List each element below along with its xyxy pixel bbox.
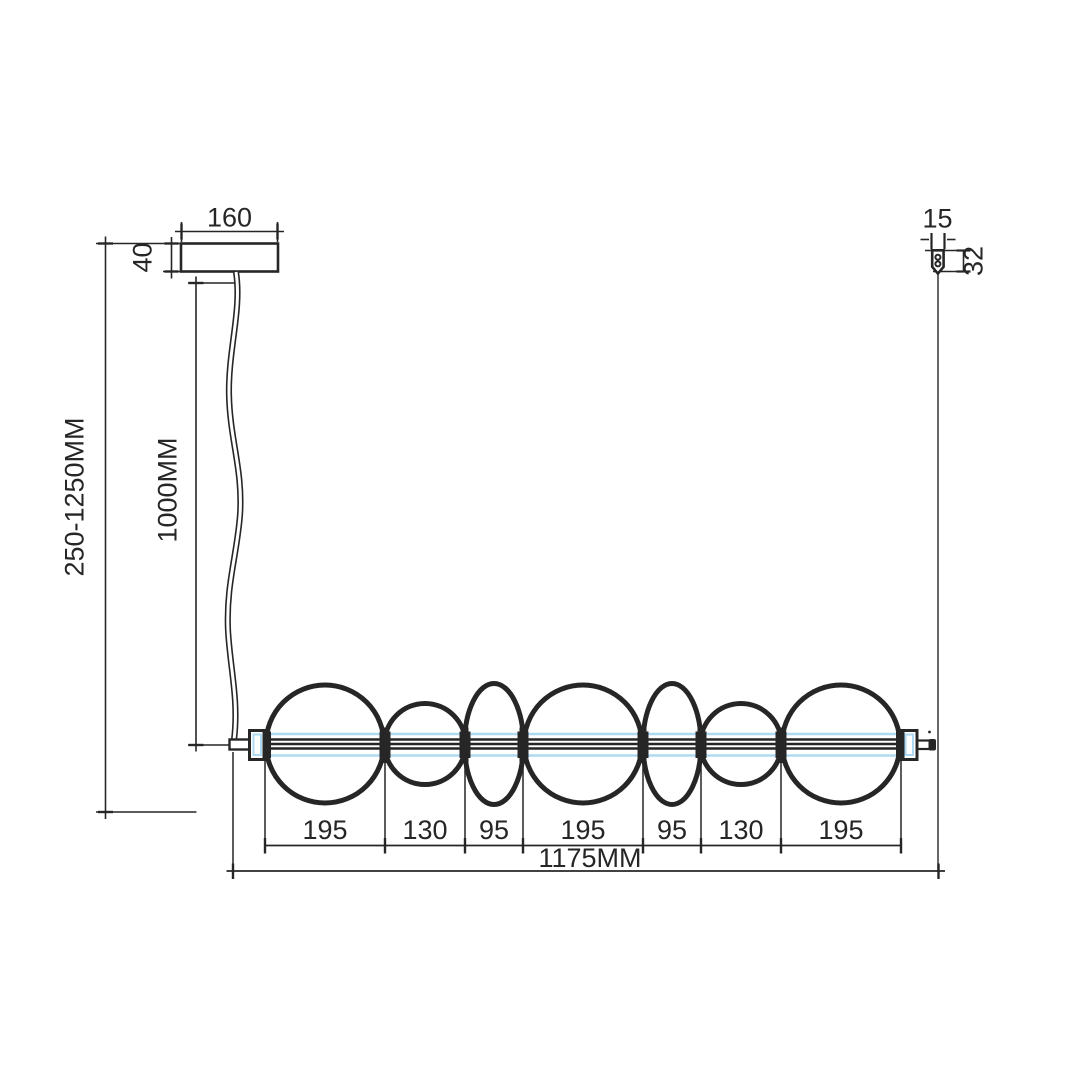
dim-label-suspension-range: 250-1250MM <box>60 417 90 576</box>
dim-label-segment-3: 95 <box>479 815 509 845</box>
end-cap-right-junction <box>896 732 905 759</box>
connector-block <box>776 728 787 764</box>
connector-body <box>380 732 391 759</box>
dim-label-segment-4: 195 <box>560 815 605 845</box>
connector-block <box>696 728 707 764</box>
fixture <box>250 684 937 805</box>
connector-body <box>518 732 529 759</box>
dim-label-cable-length: 1000MM <box>153 437 183 542</box>
suspension-cable <box>228 272 251 750</box>
connector-block <box>460 728 471 764</box>
dim-label-canopy-height: 40 <box>128 242 158 272</box>
connector-block <box>638 728 649 764</box>
connector-block <box>518 728 529 764</box>
end-pin-right <box>918 731 937 751</box>
gripper-screw <box>935 261 940 266</box>
dim-label-segment-6: 130 <box>718 815 763 845</box>
pin-mark <box>928 731 931 734</box>
connector-body <box>776 732 787 759</box>
end-cap-left-junction <box>263 732 272 759</box>
drawing-canvas: 160 40 250-1250MM 1000MM <box>0 0 1080 1080</box>
dim-label-segment-1: 195 <box>302 815 347 845</box>
dim-segments: 195 130 95 195 95 130 195 <box>265 760 901 854</box>
dim-label-canopy-width: 160 <box>207 203 252 233</box>
dim-canopy-width: 160 <box>175 203 284 243</box>
dim-label-overall-length: 1175MM <box>538 843 641 873</box>
gripper-screw <box>935 255 940 260</box>
pendant-dimension-drawing: 160 40 250-1250MM 1000MM <box>0 0 1080 1080</box>
canopy-plate <box>181 244 278 272</box>
dim-label-gripper-height: 32 <box>959 246 989 276</box>
connector-body <box>638 732 649 759</box>
dim-label-segment-5: 95 <box>657 815 687 845</box>
connector-body <box>460 732 471 759</box>
dim-label-segment-7: 195 <box>818 815 863 845</box>
pin-tip <box>929 739 937 751</box>
dim-cable-length: 1000MM <box>153 277 238 752</box>
cable-elbow-fitting <box>230 740 251 750</box>
dim-label-segment-2: 130 <box>402 815 447 845</box>
dim-label-gripper-width: 15 <box>922 204 952 234</box>
cable-gripper-detail: 15 32 <box>921 204 989 872</box>
connector-body <box>696 732 707 759</box>
connector-block <box>380 728 391 764</box>
canopy-assembly <box>181 244 278 272</box>
